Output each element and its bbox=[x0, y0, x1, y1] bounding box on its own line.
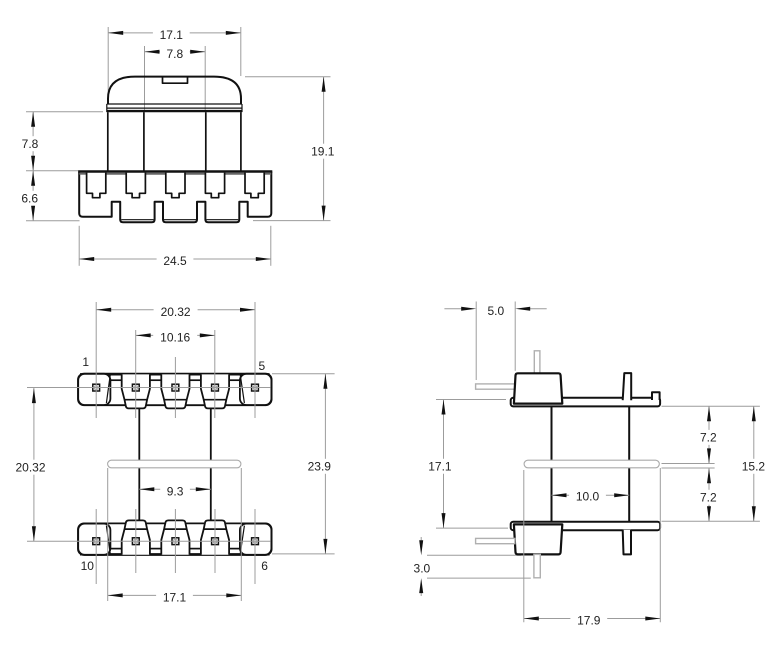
svg-text:5.0: 5.0 bbox=[487, 304, 504, 318]
svg-text:6.6: 6.6 bbox=[21, 191, 38, 205]
svg-text:7.2: 7.2 bbox=[700, 490, 717, 504]
svg-text:3.0: 3.0 bbox=[414, 562, 431, 576]
svg-text:5: 5 bbox=[259, 359, 266, 373]
svg-text:7.8: 7.8 bbox=[22, 137, 39, 151]
svg-text:17.1: 17.1 bbox=[428, 460, 452, 474]
svg-text:17.1: 17.1 bbox=[160, 28, 184, 42]
svg-text:10.16: 10.16 bbox=[160, 331, 190, 345]
svg-text:20.32: 20.32 bbox=[15, 460, 45, 474]
svg-text:19.1: 19.1 bbox=[311, 144, 335, 158]
svg-text:17.9: 17.9 bbox=[577, 614, 601, 628]
svg-text:10.0: 10.0 bbox=[576, 490, 600, 504]
svg-text:17.1: 17.1 bbox=[163, 591, 187, 605]
svg-text:15.2: 15.2 bbox=[742, 459, 766, 473]
svg-text:23.9: 23.9 bbox=[308, 460, 332, 474]
svg-text:7.2: 7.2 bbox=[700, 431, 717, 445]
svg-text:6: 6 bbox=[261, 559, 268, 573]
svg-text:9.3: 9.3 bbox=[167, 485, 184, 499]
svg-text:1: 1 bbox=[82, 355, 89, 369]
svg-text:20.32: 20.32 bbox=[161, 305, 191, 319]
svg-text:10: 10 bbox=[81, 559, 95, 573]
svg-text:7.8: 7.8 bbox=[166, 47, 183, 61]
svg-text:24.5: 24.5 bbox=[163, 254, 187, 268]
